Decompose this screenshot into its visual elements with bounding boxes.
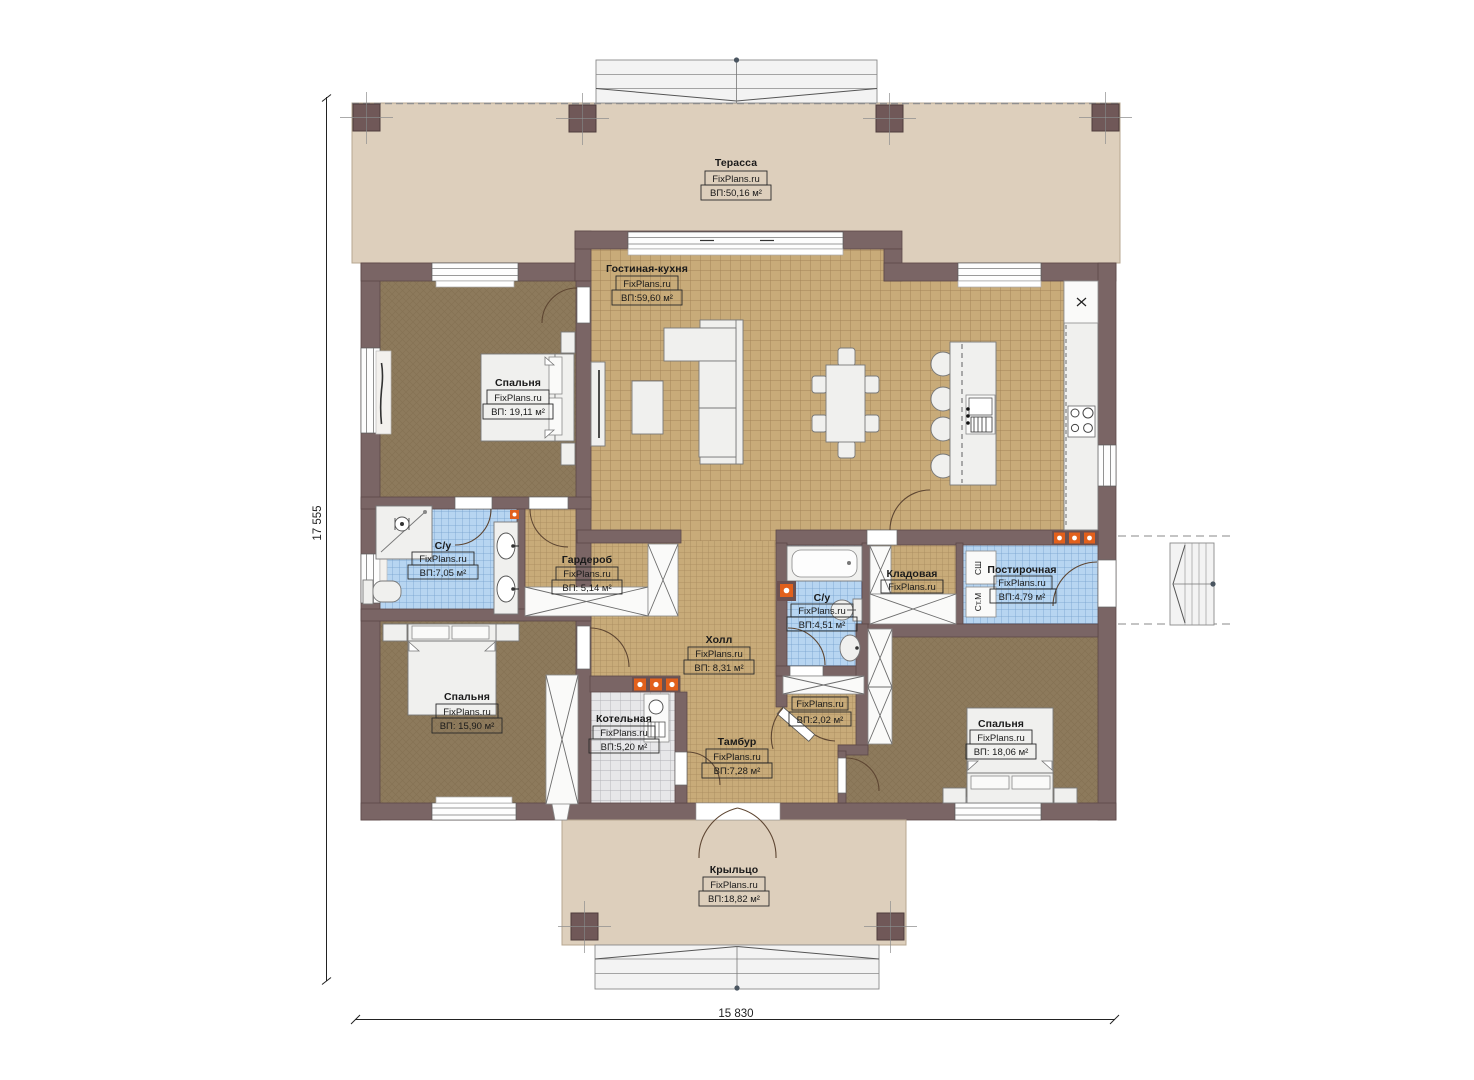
svg-text:ВП:7,05 м²: ВП:7,05 м² [420,568,467,579]
svg-text:Тамбур: Тамбур [718,736,757,748]
svg-text:FixPlans.ru: FixPlans.ru [710,880,758,891]
svg-text:ВП:4,51 м²: ВП:4,51 м² [799,620,846,631]
svg-text:FixPlans.ru: FixPlans.ru [888,582,936,593]
svg-text:FixPlans.ru: FixPlans.ru [796,699,844,710]
svg-text:FixPlans.ru: FixPlans.ru [443,707,491,718]
svg-text:Крыльцо: Крыльцо [710,864,758,876]
svg-text:Кладовая: Кладовая [886,568,937,580]
svg-text:Терасса: Терасса [715,157,757,169]
svg-text:Спальня: Спальня [444,691,490,703]
svg-text:FixPlans.ru: FixPlans.ru [419,554,467,565]
svg-text:ВП: 15,90 м²: ВП: 15,90 м² [440,721,495,732]
svg-text:ВП:18,82 м²: ВП:18,82 м² [708,894,760,905]
svg-text:ВП:4,79 м²: ВП:4,79 м² [999,592,1046,603]
svg-text:FixPlans.ru: FixPlans.ru [563,569,611,580]
svg-text:15 830: 15 830 [718,1008,753,1020]
svg-text:ВП:59,60 м²: ВП:59,60 м² [621,293,673,304]
svg-text:Гостиная-кухня: Гостиная-кухня [606,263,688,275]
svg-text:FixPlans.ru: FixPlans.ru [798,606,846,617]
svg-text:С/у: С/у [814,592,831,604]
svg-text:FixPlans.ru: FixPlans.ru [998,578,1046,589]
svg-text:ВП:50,16 м²: ВП:50,16 м² [710,188,762,199]
svg-text:Спальня: Спальня [495,377,541,389]
svg-text:17 555: 17 555 [312,505,324,540]
svg-text:FixPlans.ru: FixPlans.ru [713,752,761,763]
svg-text:ВП:5,20 м²: ВП:5,20 м² [601,742,648,753]
svg-text:FixPlans.ru: FixPlans.ru [977,733,1025,744]
svg-text:ВП:7,28 м²: ВП:7,28 м² [714,766,761,777]
svg-text:СШ: СШ [973,561,983,575]
svg-text:Котельная: Котельная [596,713,652,725]
svg-text:Спальня: Спальня [978,718,1024,730]
svg-text:Постирочная: Постирочная [987,564,1056,576]
svg-text:FixPlans.ru: FixPlans.ru [695,649,743,660]
svg-text:Холл: Холл [706,634,733,646]
svg-text:ВП: 5,14 м²: ВП: 5,14 м² [562,583,611,594]
svg-text:FixPlans.ru: FixPlans.ru [600,728,648,739]
svg-text:ВП: 19,11 м²: ВП: 19,11 м² [491,407,545,418]
svg-text:FixPlans.ru: FixPlans.ru [494,393,542,404]
svg-text:ВП: 18,06 м²: ВП: 18,06 м² [974,747,1029,758]
svg-text:ВП:2,02 м²: ВП:2,02 м² [797,715,844,726]
svg-text:Гардероб: Гардероб [562,554,613,566]
svg-text:С/у: С/у [435,540,452,552]
svg-text:FixPlans.ru: FixPlans.ru [712,174,760,185]
svg-text:FixPlans.ru: FixPlans.ru [623,279,671,290]
svg-text:Ст.М: Ст.М [973,593,983,612]
svg-text:ВП: 8,31 м²: ВП: 8,31 м² [694,663,743,674]
